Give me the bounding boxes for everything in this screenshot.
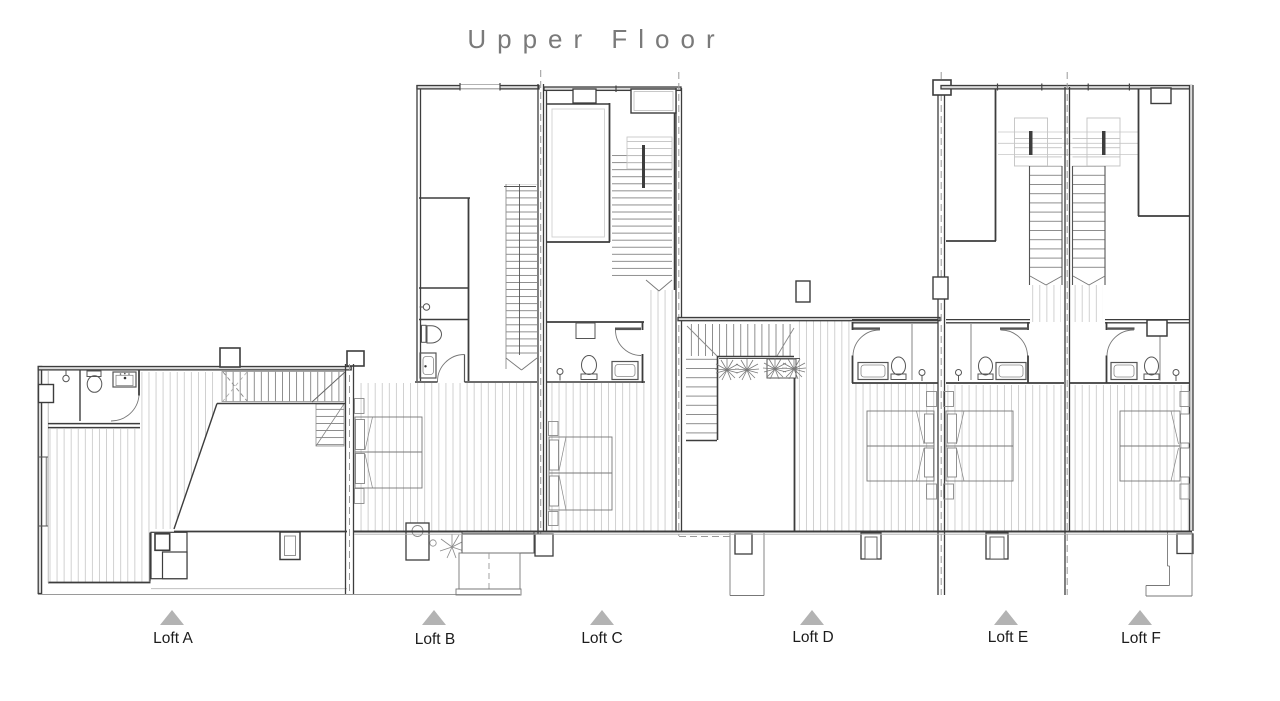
svg-text:Loft A: Loft A — [153, 630, 193, 647]
svg-text:Loft F: Loft F — [1121, 630, 1161, 647]
svg-text:Loft B: Loft B — [415, 631, 456, 648]
svg-text:Loft C: Loft C — [581, 630, 622, 647]
svg-text:Loft D: Loft D — [792, 629, 833, 646]
svg-text:Loft E: Loft E — [988, 629, 1029, 646]
svg-text:Upper Floor: Upper Floor — [467, 24, 725, 54]
